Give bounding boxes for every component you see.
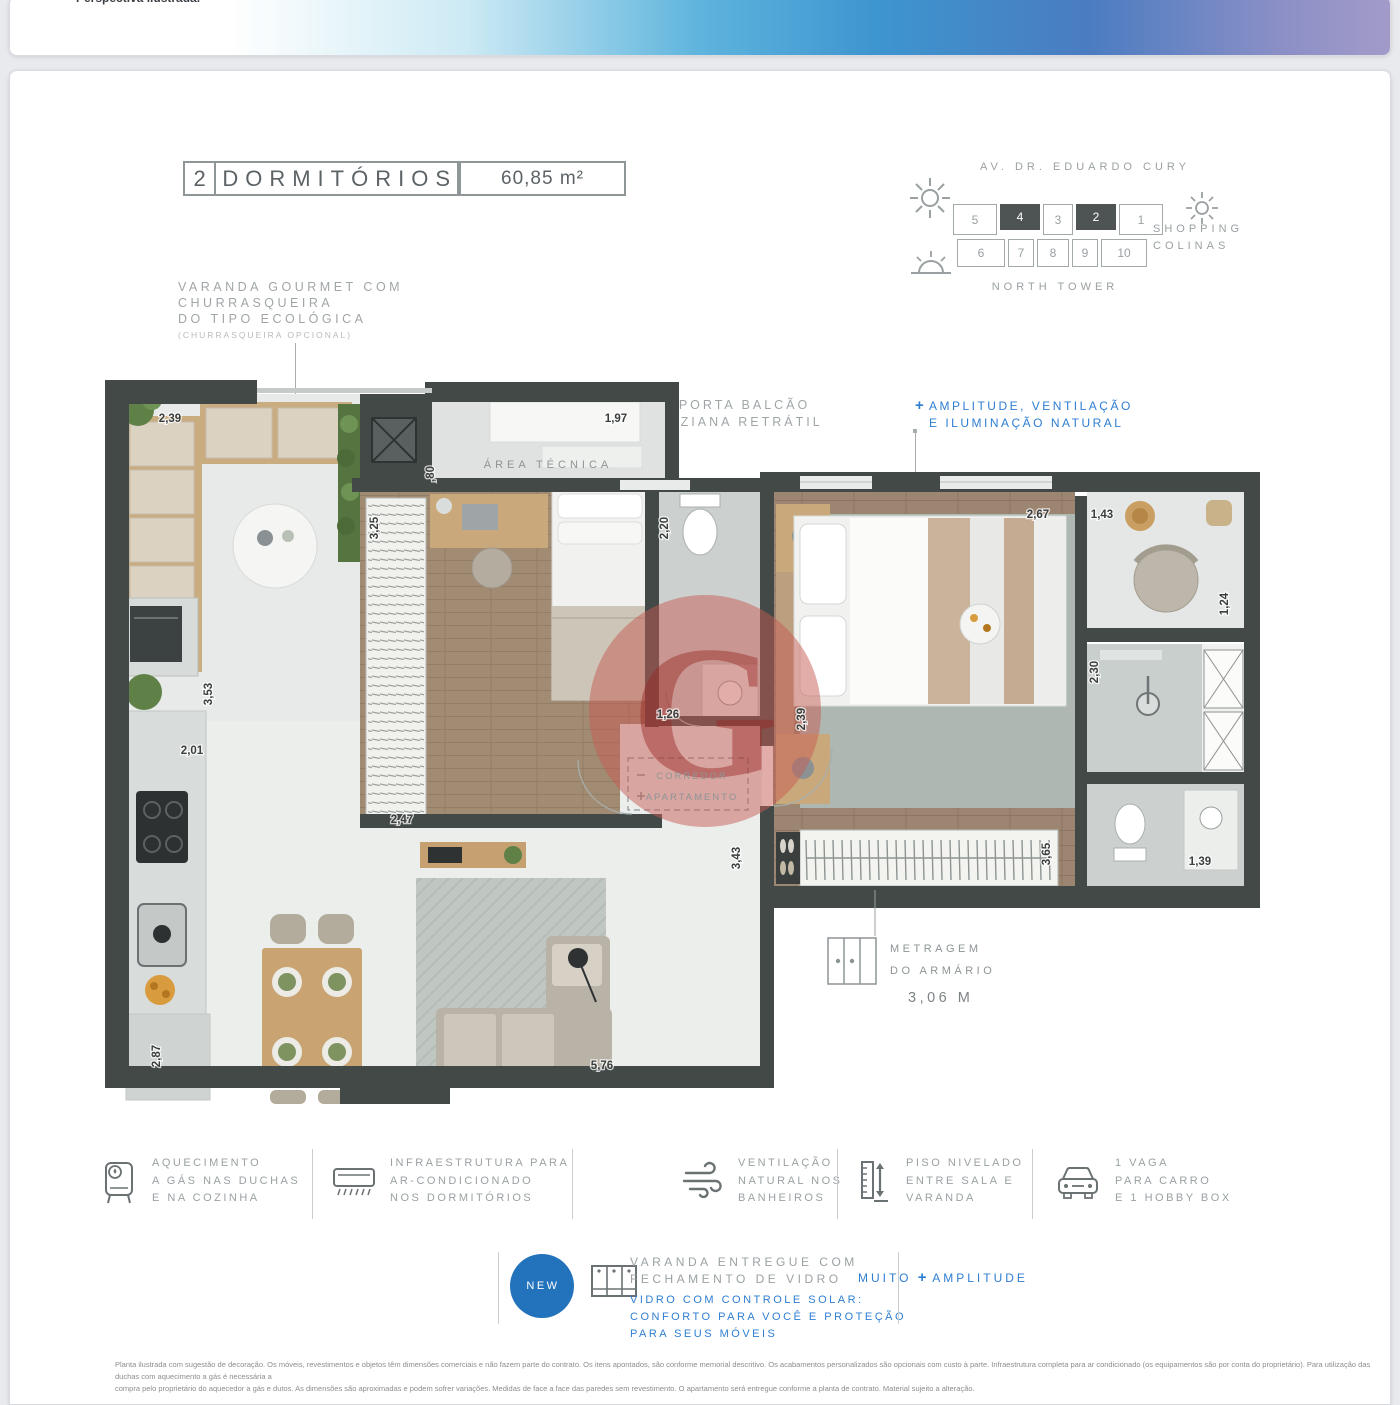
car-icon (1055, 1159, 1101, 1203)
svg-text:2,30: 2,30 (1089, 661, 1101, 683)
perspective-caption: Perspectiva ilustrada. (76, 0, 200, 5)
svg-text:G: G (631, 608, 779, 818)
breakfast-tray (960, 604, 1000, 644)
svg-text:2,67: 2,67 (1027, 509, 1049, 521)
area-tecnica-label: ÁREA TÉCNICA (484, 458, 613, 471)
feature-parking: 1 VAGA PARA CARRO E 1 HOBBY BOX (1055, 1153, 1232, 1208)
sun-icon (909, 177, 951, 219)
unit-box: 5 (953, 204, 997, 235)
site-key-diagram: AV. DR. EDUARDO CURY (885, 159, 1305, 309)
kitchen (126, 711, 210, 1100)
new-badge: NEW (510, 1254, 574, 1318)
divider (572, 1149, 573, 1219)
varanda-note: VARANDA GOURMET COM CHURRASQUEIRA DO TIP… (178, 279, 403, 340)
floor-plan-card[interactable]: 2 DORMITÓRIOS 60,85 m² VARANDA GOURMET C… (9, 70, 1391, 1405)
feature-ac-infrastructure: INFRAESTRUTURA PARA AR-CONDICIONADO NOS … (332, 1153, 569, 1208)
plan-title-box: 2 DORMITÓRIOS (183, 161, 459, 196)
gradient-banner (10, 0, 1390, 55)
unit-box-highlighted: 4 (1000, 204, 1040, 230)
divider (312, 1149, 313, 1219)
svg-text:1,43: 1,43 (1091, 509, 1113, 521)
floor-plan-drawing: G ÁREA TÉCNICA CORREDOR APARTAMENTO 2,39… (100, 366, 1260, 1111)
street-label: AV. DR. EDUARDO CURY (885, 161, 1285, 173)
svg-text:3,65: 3,65 (1041, 842, 1053, 865)
toilet (683, 509, 717, 555)
sunrise-icon (909, 249, 953, 277)
water-heater-icon (98, 1159, 138, 1207)
plan-title: DORMITÓRIOS (216, 166, 457, 192)
svg-text:1,97: 1,97 (605, 413, 627, 425)
svg-text:5,76: 5,76 (591, 1060, 613, 1072)
chair (472, 548, 512, 588)
fruit-bowl (145, 975, 175, 1005)
shoe-rack (776, 832, 800, 884)
previous-image-card[interactable]: Perspectiva ilustrada. (9, 0, 1391, 56)
tower-label: NORTH TOWER (925, 281, 1185, 293)
new-feature-title: VARANDA ENTREGUE COM FECHAMENTO DE VIDRO (630, 1254, 858, 1288)
floor-plan-svg: G ÁREA TÉCNICA CORREDOR APARTAMENTO 2,39… (100, 366, 1260, 1111)
svg-text:2,01: 2,01 (181, 745, 204, 757)
plant (126, 674, 162, 710)
wind-icon (682, 1159, 724, 1203)
level-ruler-icon (858, 1159, 892, 1205)
feature-level-floor: PISO NIVELADO ENTRE SALA E VARANDA (858, 1153, 1023, 1208)
bedroom-count: 2 (185, 163, 216, 194)
living-room (416, 842, 612, 1082)
sun-icon (1185, 191, 1219, 225)
toilet (1115, 804, 1145, 844)
svg-text:2,87: 2,87 (151, 1045, 163, 1067)
air-conditioner-icon (332, 1159, 376, 1203)
svg-text:2,39: 2,39 (159, 413, 181, 425)
unit-box-highlighted: 2 (1076, 204, 1116, 230)
feature-gas-heating: AQUECIMENTO A GÁS NAS DUCHAS E NA COZINH… (98, 1153, 300, 1208)
feature-natural-ventilation: VENTILAÇÃO NATURAL NOS BANHEIROS (682, 1153, 843, 1208)
units-row-bottom: 6 7 8 9 10 (957, 239, 1147, 267)
unit-box: 10 (1101, 239, 1147, 267)
svg-text:2,47: 2,47 (391, 814, 413, 826)
svg-text:1,26: 1,26 (657, 709, 679, 721)
corridor-label-1: CORREDOR (656, 771, 727, 782)
svg-text:DO ARMÁRIO: DO ARMÁRIO (890, 964, 995, 977)
legal-disclaimer: Planta ilustrada com sugestão de decoraç… (115, 1359, 1385, 1395)
round-table (233, 504, 317, 588)
divider (837, 1149, 838, 1219)
pouf (1206, 500, 1232, 526)
unit-box: 7 (1008, 239, 1034, 267)
svg-text:3,06 M: 3,06 M (908, 990, 973, 1006)
svg-text:1,24: 1,24 (1219, 592, 1231, 615)
shopping-label: SHOPPING COLINAS (1153, 221, 1243, 255)
divider (898, 1252, 899, 1324)
svg-text:,80: ,80 (425, 466, 437, 482)
svg-text:3,53: 3,53 (203, 683, 215, 705)
svg-text:1,39: 1,39 (1189, 856, 1211, 868)
plan-area: 60,85 m² (459, 161, 626, 196)
svg-text:METRAGEM: METRAGEM (890, 943, 982, 955)
unit-box: 3 (1043, 204, 1073, 235)
svg-text:2,20: 2,20 (659, 517, 671, 539)
divider (1032, 1149, 1033, 1219)
cooktop (136, 791, 188, 863)
dining-table (262, 948, 362, 1086)
new-feature-detail: VIDRO COM CONTROLE SOLAR: CONFORTO PARA … (630, 1292, 906, 1343)
svg-text:2,39: 2,39 (796, 708, 808, 730)
unit-box: 9 (1072, 239, 1098, 267)
unit-box: 8 (1037, 239, 1069, 267)
units-row-top: 5 4 3 2 1 (953, 204, 1163, 235)
corridor-label-2: APARTAMENTO (646, 792, 739, 803)
svg-text:3,25: 3,25 (369, 516, 381, 539)
unit-box: 6 (957, 239, 1005, 267)
features-row: AQUECIMENTO A GÁS NAS DUCHAS E NA COZINH… (10, 1141, 1392, 1241)
divider (498, 1252, 499, 1324)
new-feature-row: NEW VARANDA ENTREGUE COM FECHAMENTO DE V… (10, 1246, 1392, 1341)
svg-text:3,43: 3,43 (731, 847, 743, 869)
elevator-shaft (360, 394, 432, 491)
